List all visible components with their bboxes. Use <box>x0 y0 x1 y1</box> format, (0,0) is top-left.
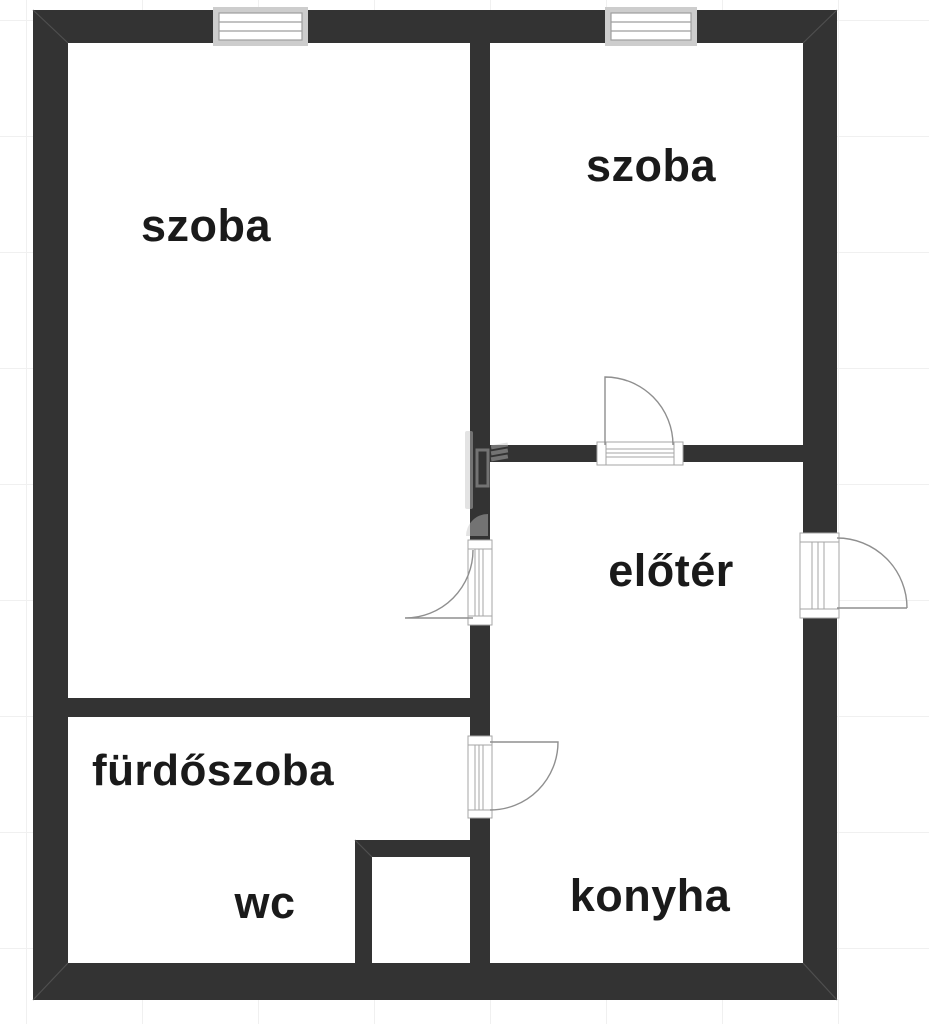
room-label-szoba-right: szoba <box>586 140 716 192</box>
room-label-furdoszoba: fürdőszoba <box>92 746 334 796</box>
wall-wc-horizontal <box>355 840 490 857</box>
window-szoba-right-top <box>605 7 697 46</box>
window-glass <box>219 13 302 40</box>
room-label-szoba-left: szoba <box>141 200 271 252</box>
door-swing-arc <box>837 538 907 608</box>
window-szoba-left-top <box>213 7 308 46</box>
wall-outer-top <box>33 10 837 43</box>
wall-outer-left <box>33 10 68 1000</box>
floorplan-drawing <box>0 0 929 1024</box>
door-jamb <box>800 533 839 618</box>
door-jamb <box>468 736 492 818</box>
room-label-konyha: konyha <box>570 870 731 922</box>
wall-szoba-left-furdoszoba <box>68 698 490 717</box>
window-glass <box>611 13 691 40</box>
room-label-wc: wc <box>234 877 295 929</box>
wall-outer-right <box>803 10 837 1000</box>
floorplan-canvas: szoba szoba előtér fürdőszoba wc konyha <box>0 0 929 1024</box>
door-entrance-right-wall <box>800 533 907 618</box>
wall-wc-vertical <box>355 840 372 963</box>
room-label-eloter: előtér <box>608 545 734 597</box>
wall-outer-bottom <box>33 963 837 1000</box>
door-jamb <box>468 540 492 625</box>
